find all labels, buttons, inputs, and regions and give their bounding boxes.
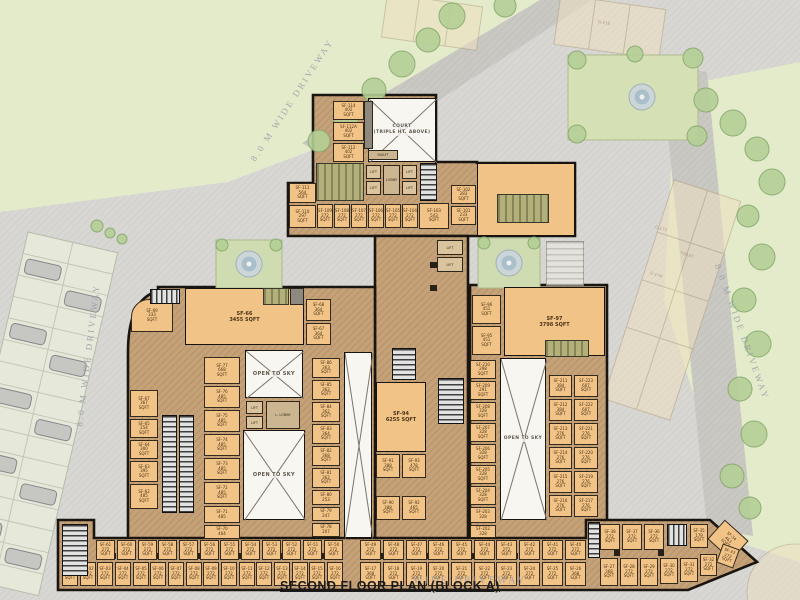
unit-SF-31: SF-31272SQFT: [680, 558, 698, 582]
unit-SF-220: SF-220276SQFT: [574, 447, 598, 469]
unit-SF-213: SF-213276SQFT: [549, 423, 572, 445]
escalator: [162, 415, 177, 513]
escalator: [62, 524, 88, 576]
unit-SF-110: SF-110297SQFT: [289, 205, 316, 228]
escalator: [392, 348, 416, 380]
unit-SF-104: SF-104272SQFT: [402, 204, 418, 228]
unit-SF-112: SF-112402SQFT: [333, 143, 364, 162]
unit-SF-108: SF-108272SQFT: [334, 204, 350, 228]
lift-box: LIFT: [366, 181, 381, 195]
unit-SF-09: SF-09272SQFT: [203, 562, 219, 586]
unit-SF-56: SF-56272SQFT: [200, 540, 219, 560]
unit-SF-106: SF-106272SQFT: [368, 204, 384, 228]
shaft-box: SHAFT: [368, 150, 398, 160]
unit-SF-28: SF-28272SQFT: [620, 558, 638, 586]
unit-SF-04: SF-04272SQFT: [115, 562, 131, 586]
unit-SF-101: SF-101233SQFT: [451, 206, 476, 225]
unit-SF-214: SF-214276SQFT: [549, 447, 572, 469]
unit-SF-86: SF-86363SQFT: [312, 358, 340, 378]
lift-box: LIFT: [246, 416, 263, 429]
unit-SF-29: SF-29272SQFT: [640, 558, 658, 586]
unit-SF-81: SF-81362SQFT: [312, 468, 340, 488]
unit-SF-51: SF-51272SQFT: [303, 540, 322, 560]
unit-SF-70: SF-70464: [204, 525, 240, 539]
unit-SF-35: SF-35179SQFT: [690, 524, 708, 548]
escalator: [179, 415, 194, 513]
unit-SF-80: SF-80253: [312, 490, 340, 505]
unit-SF-103: SF-103543SQFT: [419, 203, 449, 229]
lobby-box: LOBBY: [383, 165, 400, 195]
unit-SF-67: SF-67367SQFT: [130, 390, 158, 417]
unit-SF-221: SF-221276SQFT: [574, 423, 598, 445]
unit-SF-211: SF-211384SQFT: [549, 375, 572, 397]
unit-SF-63: SF-63395SQFT: [130, 461, 158, 482]
unit-SF-64: SF-64300SQFT: [130, 440, 158, 459]
unit-SF-85: SF-85362SQFT: [312, 380, 340, 400]
unit-SF-27: SF-27368SQFT: [600, 558, 618, 586]
unit-SF-207: SF-207328SQFT: [470, 423, 496, 442]
lift-box: LIFT: [366, 165, 381, 179]
unit-SF-210: SF-210298SQFT: [470, 360, 496, 379]
unit-SF-111: SF-111564SQFT: [289, 183, 316, 203]
unit-SF-223: SF-223607SQFT: [574, 375, 598, 397]
toilet-block: [545, 340, 589, 357]
unit-SF-77: SF-77668SQFT: [204, 357, 240, 384]
unit-SF-215: SF-215276SQFT: [549, 471, 572, 493]
lift-box: LIFT: [402, 165, 417, 179]
unit-SF-44: SF-44272SQFT: [474, 540, 495, 560]
unit-SF-96: SF-96451SQFT: [472, 295, 501, 324]
unit-SF-53: SF-53272SQFT: [262, 540, 281, 560]
unit-SF-84: SF-84362SQFT: [312, 402, 340, 422]
unit-SF-58: SF-58272SQFT: [158, 540, 177, 560]
unit-SF-208: SF-208328SQFT: [470, 402, 496, 421]
unit-SF-91: SF-91388SQFT: [376, 454, 400, 478]
unit-SF-60: SF-60272SQFT: [117, 540, 136, 560]
unit-SF-109: SF-109272SQFT: [317, 204, 333, 228]
lift-box: LIFT: [402, 181, 417, 195]
unit-SF-205: SF-205328SQFT: [470, 465, 496, 484]
unit-SF-90: SF-90388SQFT: [376, 496, 400, 520]
unit-SF-62: SF-62485SQFT: [130, 484, 158, 509]
unit-SF-03: SF-03272SQFT: [97, 562, 113, 586]
escalator: [667, 524, 687, 546]
unit-SF-78: SF-78207: [312, 523, 340, 537]
unit-SF-112A: SF-112A402SQFT: [333, 122, 364, 141]
unit-SF-102: SF-102283SQFT: [451, 185, 476, 204]
unit-SF-40: SF-40272SQFT: [565, 540, 586, 560]
unit-SF-73: SF-73485SQFT: [204, 458, 240, 480]
unit-SF-07: SF-07272SQFT: [168, 562, 184, 586]
floor-plan-canvas: SECOND FLOOR PLAN (BLOCK A) SF-114402SQF…: [0, 0, 800, 600]
unit-SF-59: SF-59272SQFT: [138, 540, 157, 560]
unit-SF-114: SF-114402SQFT: [333, 101, 364, 120]
unit-SF-68: SF-68364SQFT: [306, 299, 331, 321]
court-open: [344, 352, 372, 538]
unit-SF-212: SF-212384SQFT: [549, 399, 572, 421]
unit-SF-72: SF-72485SQFT: [204, 482, 240, 504]
unit-SF-05: SF-05272SQFT: [133, 562, 149, 586]
unit-SF-52: SF-52272SQFT: [282, 540, 301, 560]
toilet-block: [497, 194, 549, 223]
unit-SF-95: SF-95451SQFT: [472, 326, 501, 355]
escalator: [420, 163, 437, 201]
unit-SF-43: SF-43272SQFT: [496, 540, 517, 560]
unit-SF-219: SF-219276SQFT: [574, 471, 598, 493]
unit-SF-61: SF-61272SQFT: [96, 540, 115, 560]
plan-title: SECOND FLOOR PLAN (BLOCK A): [230, 579, 550, 593]
unit-SF-47: SF-47272SQFT: [406, 540, 427, 560]
unit-SF-107: SF-107272SQFT: [351, 204, 367, 228]
unit-SF-82: SF-82368SQFT: [312, 446, 340, 466]
hall-SF-94: SF-946255 SQFT: [376, 382, 426, 452]
unit-SF-67: SF-67364SQFT: [306, 323, 331, 345]
escalator: [150, 289, 180, 304]
unit-SF-46: SF-46272SQFT: [428, 540, 449, 560]
unit-SF-204: SF-204328SQFT: [470, 486, 496, 505]
unit-SF-222: SF-222607SQFT: [574, 399, 598, 421]
unit-SF-49: SF-49272SQFT: [360, 540, 381, 560]
unit-SF-50: SF-50272SQFT: [324, 540, 343, 560]
escalator: [588, 522, 600, 558]
unit-SF-93: SF-93478SQFT: [402, 454, 426, 478]
unit-SF-75: SF-75485SQFT: [204, 410, 240, 432]
shaft-box: [290, 288, 304, 305]
unit-SF-57: SF-57272SQFT: [179, 540, 198, 560]
unit-SF-76: SF-76485SQFT: [204, 386, 240, 408]
unit-SF-45: SF-45272SQFT: [451, 540, 472, 560]
toilet-block: [316, 163, 364, 201]
court-open-to-sky: OPEN TO SKY: [243, 430, 305, 520]
unit-SF-217: SF-217276SQFT: [574, 495, 598, 517]
unit-SF-55: SF-55272SQFT: [220, 540, 239, 560]
unit-SF-65: SF-65254SQFT: [130, 419, 158, 438]
court-open-to-sky: OPEN TO SKY: [245, 350, 303, 398]
toilet-block: [263, 288, 289, 305]
site-plan-graphics: [0, 0, 800, 600]
shaft-box: [364, 101, 373, 149]
unit-SF-37: SF-37272SQFT: [622, 524, 642, 550]
unit-SF-32: SF-32272SQFT: [700, 554, 717, 576]
lift-box: LIFT: [437, 240, 463, 255]
unit-SF-06: SF-06272SQFT: [150, 562, 166, 586]
unit-SF-38: SF-38272SQFT: [600, 524, 620, 550]
unit-SF-36: SF-36272SQFT: [644, 524, 664, 550]
unit-SF-41: SF-41272SQFT: [542, 540, 563, 560]
unit-SF-71: SF-71485: [204, 506, 240, 523]
ghost-staircase: [546, 241, 584, 286]
unit-SF-08: SF-08272SQFT: [186, 562, 202, 586]
l-lobby-box: L. LOBBY: [266, 401, 300, 429]
unit-SF-79: SF-79247: [312, 507, 340, 521]
unit-SF-54: SF-54272SQFT: [241, 540, 260, 560]
unit-SF-206: SF-206328SQFT: [470, 444, 496, 463]
unit-SF-48: SF-48272SQFT: [383, 540, 404, 560]
unit-SF-26: SF-26368SQFT: [565, 562, 586, 586]
unit-SF-92: SF-92465SQFT: [402, 496, 426, 520]
unit-SF-203: SF-203328: [470, 507, 496, 523]
escalator: [438, 378, 464, 424]
unit-SF-216: SF-216276SQFT: [549, 495, 572, 517]
unit-SF-209: SF-209291SQFT: [470, 381, 496, 400]
court-open-to-sky: OPEN TO SKY: [500, 358, 546, 520]
unit-SF-30: SF-30272SQFT: [660, 558, 678, 584]
unit-SF-83: SF-83364SQFT: [312, 424, 340, 444]
garden-top-right: [568, 55, 698, 140]
unit-SF-105: SF-105272SQFT: [385, 204, 401, 228]
lift-box: LIFT: [246, 401, 263, 414]
lift-box: LIFT: [437, 257, 463, 272]
unit-SF-42: SF-42272SQFT: [519, 540, 540, 560]
unit-SF-74: SF-74485SQFT: [204, 434, 240, 456]
unit-SF-202: SF-202328: [470, 525, 496, 538]
